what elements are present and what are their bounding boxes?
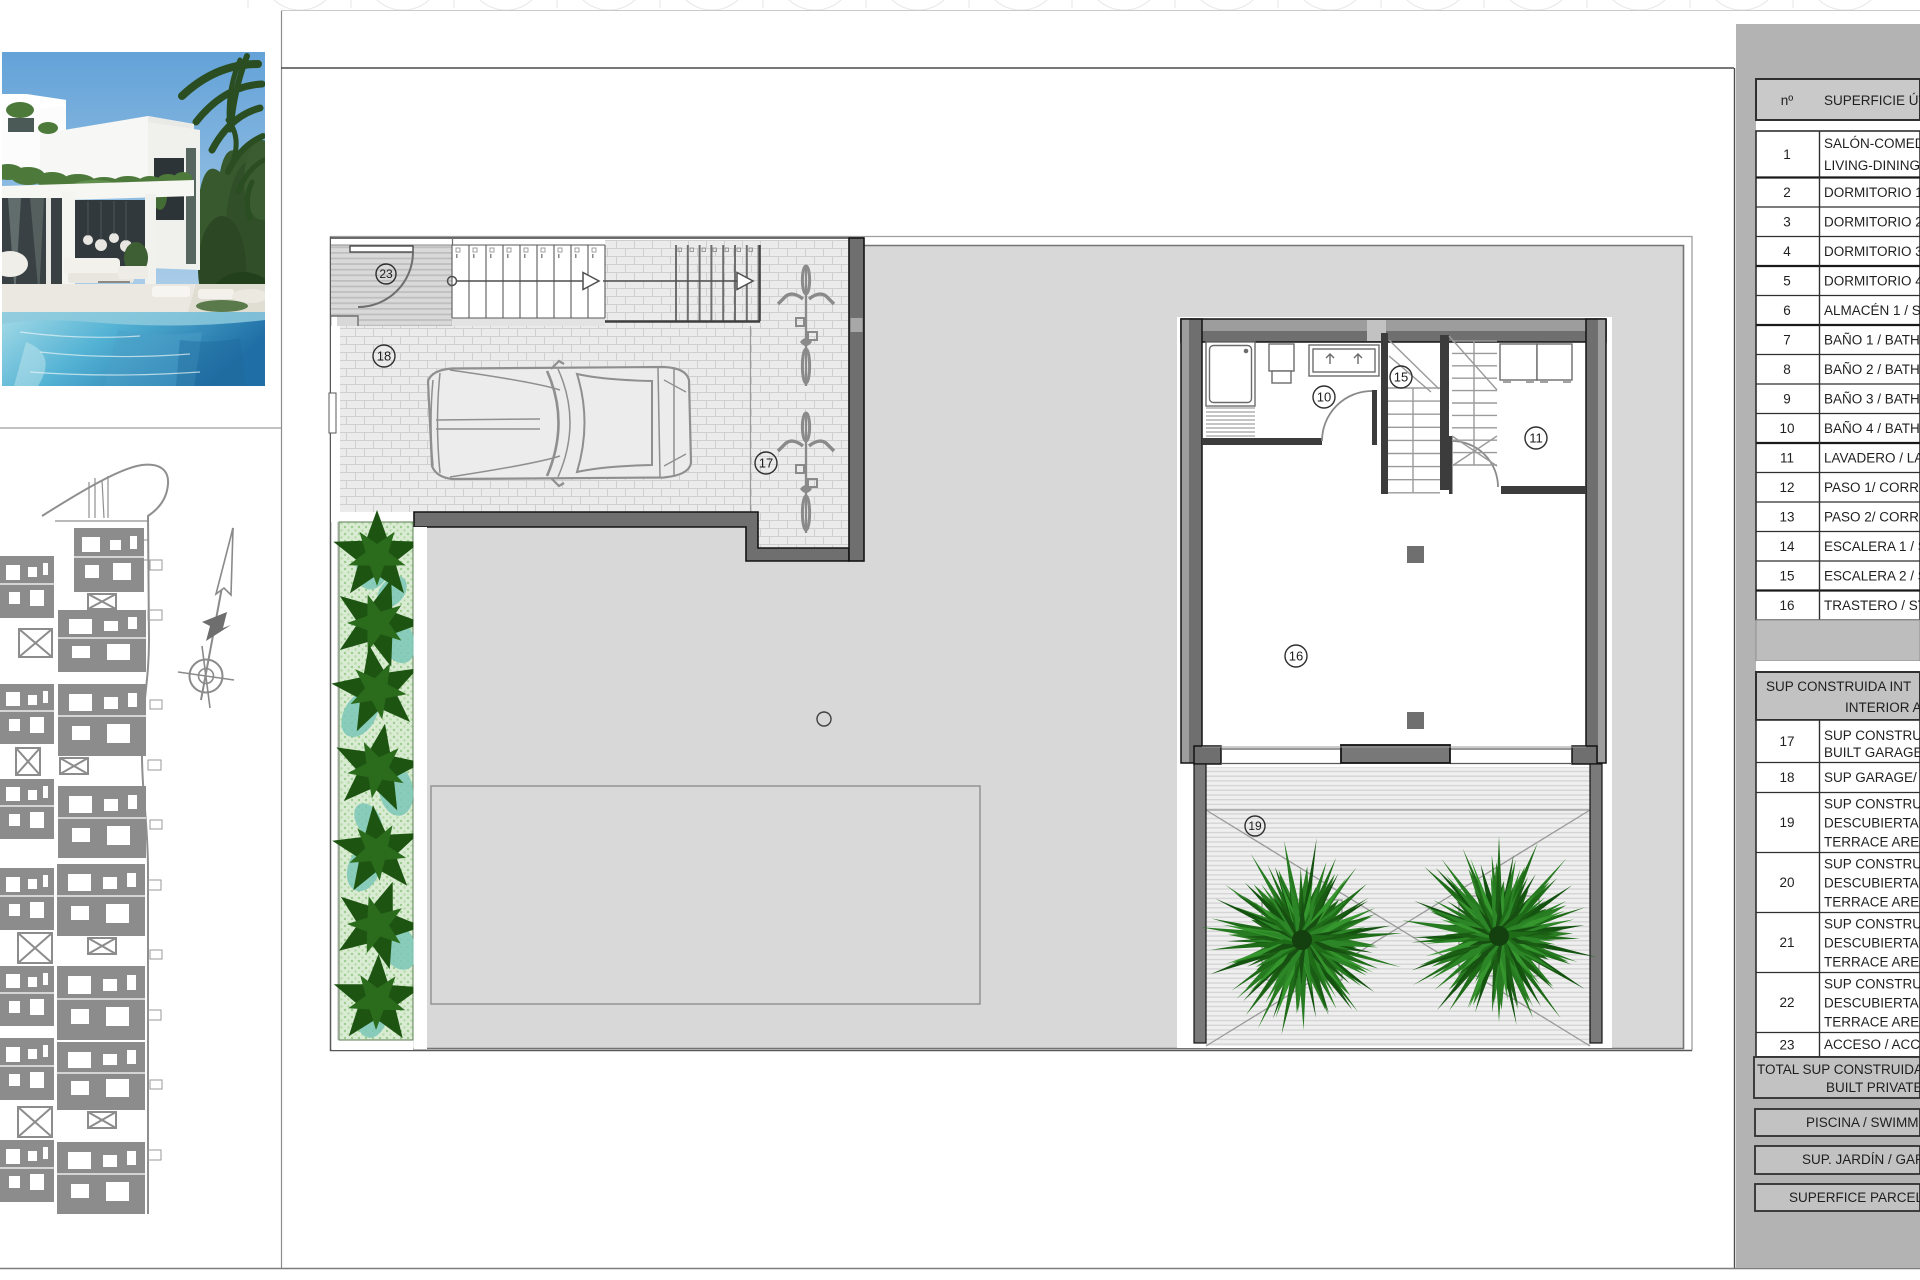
svg-text:DORMITORIO 2 /: DORMITORIO 2 /: [1824, 214, 1920, 229]
svg-text:DESCUBIERTA 1: DESCUBIERTA 1: [1824, 816, 1920, 831]
svg-text:9: 9: [1783, 391, 1791, 406]
svg-text:TOTAL SUP CONSTRUIDA: TOTAL SUP CONSTRUIDA: [1757, 1062, 1920, 1077]
svg-text:11: 11: [1529, 431, 1543, 446]
svg-text:ESCALERA 1 / ST: ESCALERA 1 / ST: [1824, 539, 1920, 554]
svg-text:LAVADERO / LA: LAVADERO / LA: [1824, 450, 1920, 465]
svg-text:21: 21: [1779, 935, 1794, 950]
svg-text:16: 16: [1289, 649, 1303, 664]
svg-text:BAÑO 1 / BATH: BAÑO 1 / BATH: [1824, 332, 1920, 347]
svg-text:SUPERFICE PARCELA: SUPERFICE PARCELA: [1789, 1190, 1920, 1205]
svg-text:4: 4: [1783, 244, 1791, 259]
svg-text:BUILT PRIVATE: BUILT PRIVATE: [1826, 1080, 1920, 1095]
svg-text:SUP CONSTRUID: SUP CONSTRUID: [1824, 797, 1920, 812]
svg-text:19: 19: [1248, 819, 1262, 833]
svg-text:SUPERFICIE ÚTIL: SUPERFICIE ÚTIL: [1824, 93, 1920, 108]
svg-text:ESCALERA 2 / ST: ESCALERA 2 / ST: [1824, 568, 1920, 583]
svg-text:BAÑO 4 / BATH: BAÑO 4 / BATH: [1824, 421, 1920, 436]
svg-text:SUP CONSTRUID: SUP CONSTRUID: [1824, 857, 1920, 872]
svg-text:SUP CONSTRUID: SUP CONSTRUID: [1824, 977, 1920, 992]
svg-text:22: 22: [1779, 995, 1794, 1010]
svg-text:SUP CONSTRUID: SUP CONSTRUID: [1824, 728, 1920, 743]
svg-text:15: 15: [1779, 568, 1794, 583]
svg-text:ACCESO / ACCES: ACCESO / ACCES: [1824, 1037, 1920, 1052]
svg-text:8: 8: [1783, 362, 1791, 377]
svg-text:17: 17: [759, 456, 773, 471]
svg-text:6: 6: [1783, 303, 1791, 318]
svg-text:18: 18: [1779, 770, 1794, 785]
svg-text:TERRACE AREA: TERRACE AREA: [1824, 1015, 1920, 1030]
svg-text:14: 14: [1779, 539, 1795, 554]
svg-text:TRASTERO / STO: TRASTERO / STO: [1824, 598, 1920, 613]
svg-text:PASO 2/ CORRID: PASO 2/ CORRID: [1824, 509, 1920, 524]
svg-text:13: 13: [1779, 509, 1794, 524]
svg-text:DORMITORIO 3 /: DORMITORIO 3 /: [1824, 244, 1920, 259]
svg-text:DESCUBIERTA 4: DESCUBIERTA 4: [1824, 996, 1920, 1011]
svg-text:BAÑO 2 / BATH: BAÑO 2 / BATH: [1824, 362, 1920, 377]
svg-text:PASO 1/ CORRID: PASO 1/ CORRID: [1824, 480, 1920, 495]
svg-text:INTERIOR AR: INTERIOR AR: [1845, 700, 1920, 715]
svg-text:BAÑO 3 / BATH: BAÑO 3 / BATH: [1824, 391, 1920, 406]
svg-text:PISCINA / SWIMM: PISCINA / SWIMM: [1806, 1115, 1919, 1130]
svg-text:SUP. JARDÍN / GAR: SUP. JARDÍN / GAR: [1802, 1152, 1920, 1167]
svg-text:SALÓN-COMEDO: SALÓN-COMEDO: [1824, 136, 1920, 151]
svg-text:15: 15: [1394, 370, 1408, 385]
svg-text:10: 10: [1779, 421, 1794, 436]
svg-text:SUP CONSTRUID: SUP CONSTRUID: [1824, 917, 1920, 932]
svg-text:ALMACÉN 1 / ST: ALMACÉN 1 / ST: [1824, 303, 1920, 318]
svg-text:3: 3: [1783, 214, 1791, 229]
svg-text:LIVING-DINING R: LIVING-DINING R: [1824, 158, 1920, 173]
svg-text:23: 23: [379, 267, 393, 281]
svg-text:16: 16: [1779, 598, 1794, 613]
svg-text:11: 11: [1780, 450, 1794, 465]
svg-text:18: 18: [377, 349, 391, 364]
svg-text:TERRACE AREA: TERRACE AREA: [1824, 895, 1920, 910]
svg-text:5: 5: [1783, 273, 1791, 288]
svg-text:23: 23: [1779, 1037, 1794, 1052]
svg-text:DORMITORIO 4 /: DORMITORIO 4 /: [1824, 273, 1920, 288]
svg-text:SUP GARAGE/ G: SUP GARAGE/ G: [1824, 770, 1920, 785]
svg-text:12: 12: [1779, 480, 1794, 495]
svg-text:TERRACE AREA: TERRACE AREA: [1824, 955, 1920, 970]
svg-text:17: 17: [1779, 734, 1794, 749]
svg-text:DESCUBIERTA 2: DESCUBIERTA 2: [1824, 876, 1920, 891]
svg-text:20: 20: [1779, 875, 1794, 890]
svg-text:10: 10: [1317, 390, 1331, 405]
svg-text:BUILT GARAGE A: BUILT GARAGE A: [1824, 745, 1920, 760]
svg-text:19: 19: [1779, 815, 1794, 830]
svg-text:2: 2: [1783, 185, 1791, 200]
svg-text:TERRACE AREA: TERRACE AREA: [1824, 835, 1920, 850]
svg-text:SUP CONSTRUIDA INT: SUP CONSTRUIDA INT: [1766, 679, 1911, 694]
svg-text:nº: nº: [1781, 93, 1794, 108]
svg-text:1: 1: [1783, 147, 1791, 162]
svg-text:DESCUBIERTA 3: DESCUBIERTA 3: [1824, 936, 1920, 951]
svg-text:DORMITORIO 1 /: DORMITORIO 1 /: [1824, 185, 1920, 200]
svg-text:7: 7: [1783, 332, 1791, 347]
